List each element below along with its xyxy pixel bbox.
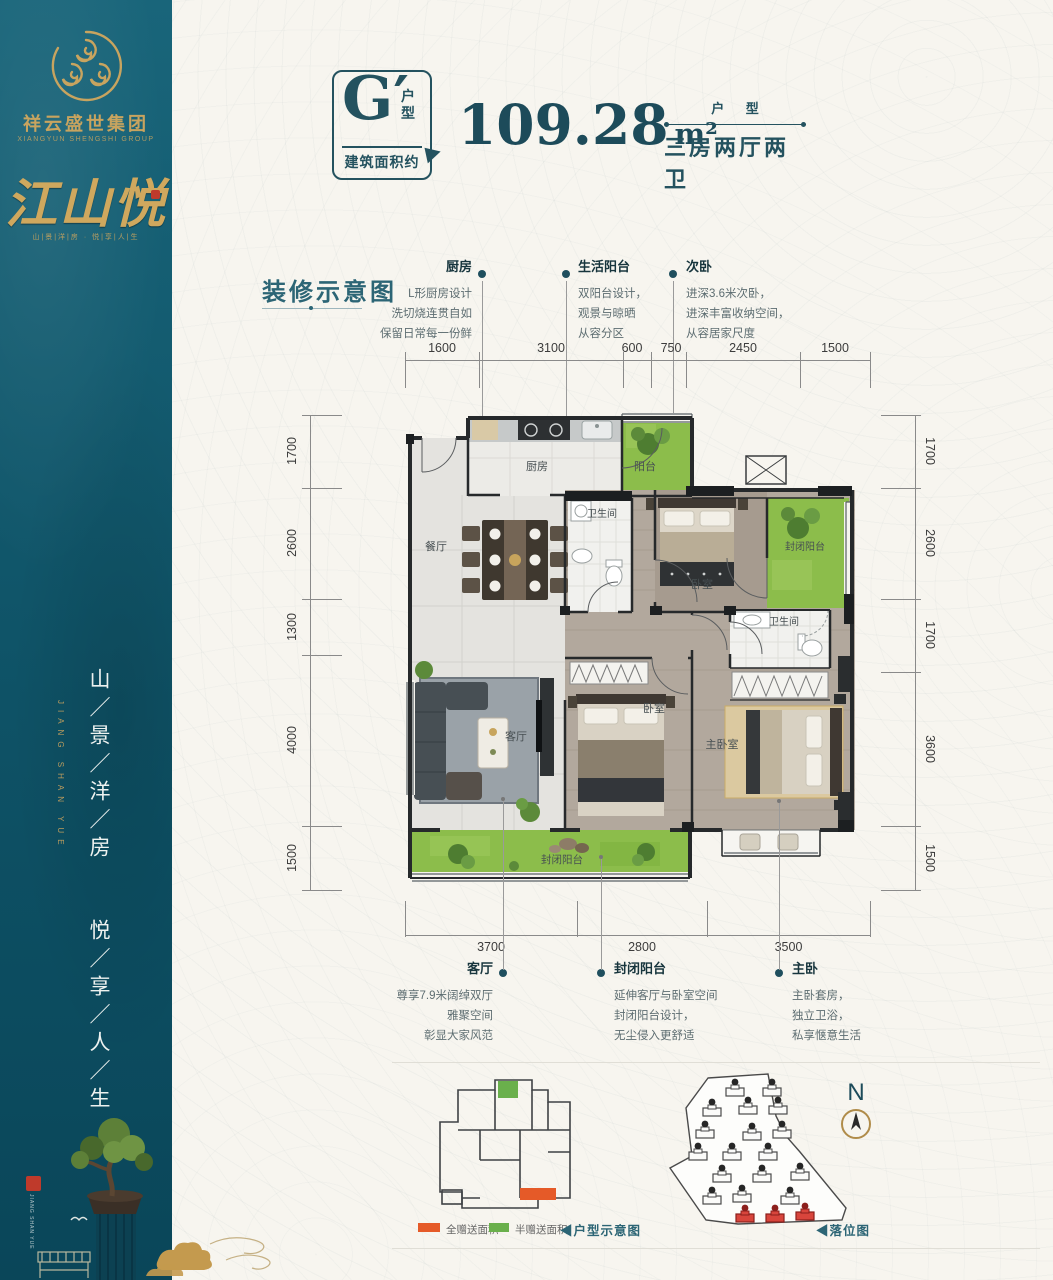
callout-dot xyxy=(669,270,677,278)
dim-left-5: 1500 xyxy=(285,828,299,888)
group-spiral-logo-icon xyxy=(46,26,126,106)
callout-dot xyxy=(562,270,570,278)
dim-tick xyxy=(870,352,871,388)
callout-enclosed-balcony-line1: 延伸客厅与卧室空间 xyxy=(614,986,774,1006)
site-plan-diagram: N xyxy=(660,1068,930,1243)
living-room-furniture xyxy=(414,661,554,822)
leader-line xyxy=(601,858,602,970)
dim-tick xyxy=(881,488,921,489)
dim-right-4: 3600 xyxy=(923,719,937,779)
callout-kitchen-line2: 洗切烧连贯自如 xyxy=(332,304,472,324)
label-master: 主卧室 xyxy=(706,737,739,751)
label-bath2: 卫生间 xyxy=(769,615,799,628)
footer-rule-bottom xyxy=(392,1248,1040,1249)
slogan-line-1: 山／景／洋／房 xyxy=(84,668,114,864)
dim-right-1: 1700 xyxy=(923,421,937,481)
layout-type-rule xyxy=(664,121,806,128)
callout-kitchen-title: 厨房 xyxy=(332,256,472,279)
unit-location-diagram xyxy=(420,1072,620,1217)
leader-enddot xyxy=(777,799,781,803)
red-seal-icon xyxy=(26,1176,41,1191)
dim-tick xyxy=(405,901,406,937)
leader-line xyxy=(503,800,504,970)
vertical-slogan: 山／景／洋／房 悦／享／人／生 xyxy=(84,668,114,1115)
dim-line-right xyxy=(915,415,916,890)
sidebar: 祥云盛世集团 XIANGYUN SHENGSHI GROUP 江山悦 山|景|洋… xyxy=(0,0,172,1280)
dim-tick xyxy=(302,826,342,827)
dim-line-left xyxy=(310,415,311,890)
dim-tick xyxy=(302,655,342,656)
layout-type-group: 户 型 三房两厅两卫 xyxy=(664,98,806,194)
legend-swatch-half xyxy=(489,1223,509,1232)
label-bath1: 卫生间 xyxy=(587,507,617,520)
dim-left-1: 1700 xyxy=(285,421,299,481)
dim-tick xyxy=(577,901,578,937)
callout-master-line1: 主卧套房， xyxy=(792,986,922,1006)
callout-master-title: 主卧 xyxy=(792,958,922,981)
dim-tick xyxy=(870,901,871,937)
group-name: 祥云盛世集团 xyxy=(0,110,172,136)
half-gift-area xyxy=(498,1081,518,1098)
callout-dot xyxy=(478,270,486,278)
vertical-slogan-en: JIANG SHAN YUE xyxy=(56,700,65,851)
dim-tick xyxy=(623,352,624,388)
callout-master-line2: 独立卫浴， xyxy=(792,1006,922,1026)
legend-swatch-full xyxy=(418,1223,440,1232)
dim-left-4: 4000 xyxy=(285,710,299,770)
dim-tick xyxy=(707,901,708,937)
unit-tag-char-2: 型 xyxy=(400,105,416,122)
bay-window xyxy=(722,830,820,856)
dim-tick xyxy=(686,352,687,388)
north-letter: N xyxy=(847,1079,864,1106)
dim-tick xyxy=(881,672,921,673)
callout-dot xyxy=(499,969,507,977)
dim-bottom-2: 2800 xyxy=(577,940,707,954)
leader-line xyxy=(779,802,780,970)
dim-tick xyxy=(302,415,342,416)
layout-type-label: 户 型 xyxy=(664,98,806,117)
poster-canvas: 祥云盛世集团 XIANGYUN SHENGSHI GROUP 江山悦 山|景|洋… xyxy=(0,0,1053,1280)
compass-icon xyxy=(842,1110,870,1138)
dim-top-4: 750 xyxy=(651,341,691,355)
callout-second-bedroom-line2: 进深丰富收纳空间， xyxy=(686,304,846,324)
unit-tag-char-1: 户 xyxy=(400,88,416,105)
kitchen-counter xyxy=(468,418,622,442)
layout-type-value: 三房两厅两卫 xyxy=(664,130,806,194)
callout-enclosed-balcony-line2: 封闭阳台设计， xyxy=(614,1006,774,1026)
dim-tick xyxy=(302,488,342,489)
unit-box-divider xyxy=(342,146,422,148)
dining-table xyxy=(462,520,568,600)
callout-master: 主卧 主卧套房， 独立卫浴， 私享惬意生活 xyxy=(792,958,922,1046)
label-bedroom2: 卧室 xyxy=(643,701,665,715)
callout-living-line1: 尊享7.9米阔绰双厅 xyxy=(353,986,493,1006)
callout-enclosed-balcony-line3: 无尘侵入更舒适 xyxy=(614,1026,774,1046)
callout-dot xyxy=(597,969,605,977)
callout-living-title: 客厅 xyxy=(353,958,493,981)
callout-second-bedroom-title: 次卧 xyxy=(686,256,846,279)
bedroom1-bed xyxy=(646,498,748,586)
dim-tick xyxy=(302,890,342,891)
full-gift-area xyxy=(520,1188,556,1200)
dim-tick xyxy=(881,599,921,600)
area-label: 建筑面积约 xyxy=(334,152,430,172)
callout-living-line2: 雅聚空间 xyxy=(353,1006,493,1026)
bird-icon xyxy=(70,1214,88,1224)
dim-left-2: 2600 xyxy=(285,513,299,573)
callout-dot xyxy=(775,969,783,977)
leader-enddot xyxy=(501,797,505,801)
footer-rule-top xyxy=(392,1062,1040,1063)
callout-enclosed-balcony: 封闭阳台 延伸客厅与卧室空间 封闭阳台设计， 无尘侵入更舒适 xyxy=(614,958,774,1046)
callout-second-bedroom-line1: 进深3.6米次卧， xyxy=(686,284,846,304)
label-dining: 餐厅 xyxy=(425,539,447,553)
unit-diagram-label: ◀户型示意图 xyxy=(560,1220,641,1239)
unit-code-tag: 户 型 xyxy=(400,88,416,122)
site-diagram-label: ◀落位图 xyxy=(760,1220,870,1239)
dim-line-bottom xyxy=(405,935,870,936)
label-living: 客厅 xyxy=(505,729,527,743)
callout-kitchen: 厨房 L形厨房设计 洗切烧连贯自如 保留日常每一份鲜 xyxy=(332,256,472,344)
callout-living-line3: 彰显大家风范 xyxy=(353,1026,493,1046)
dim-top-2: 3100 xyxy=(479,341,623,355)
dim-right-2: 2600 xyxy=(923,513,937,573)
dim-tick xyxy=(881,826,921,827)
dim-right-3: 1700 xyxy=(923,605,937,665)
slogan-line-2: 悦／享／人／生 xyxy=(84,919,114,1115)
label-balcony: 阳台 xyxy=(634,459,656,473)
rule-dot-right xyxy=(801,122,806,127)
callout-kitchen-line1: L形厨房设计 xyxy=(332,284,472,304)
dim-left-3: 1300 xyxy=(285,597,299,657)
leader-enddot xyxy=(599,855,603,859)
label-kitchen: 厨房 xyxy=(526,460,548,473)
label-enclosed-right: 封闭阳台 xyxy=(785,540,825,553)
floor-plan: 厨房 阳台 卫生间 卧室 封闭阳台 餐厅 卫生间 客厅 卧室 主卧室 封闭阳台 xyxy=(400,410,870,890)
brand-calligraphy: 江山悦 xyxy=(0,162,172,237)
dim-tick xyxy=(405,352,406,388)
dim-top-3: 600 xyxy=(615,341,649,355)
gold-clouds-icon xyxy=(140,1226,300,1280)
dim-top-1: 1600 xyxy=(405,341,479,355)
dim-bottom-3: 3500 xyxy=(707,940,870,954)
dim-top-5: 2450 xyxy=(686,341,800,355)
red-seal-caption: JIANG SHAN YUE xyxy=(28,1194,34,1250)
callout-living: 客厅 尊享7.9米阔绰双厅 雅聚空间 彰显大家风范 xyxy=(353,958,493,1046)
dim-tick xyxy=(479,352,480,388)
callout-second-bedroom: 次卧 进深3.6米次卧， 进深丰富收纳空间， 从容居家尺度 xyxy=(686,256,846,344)
unit-code-box: G′ 户 型 建筑面积约 xyxy=(332,70,432,180)
callout-master-line3: 私享惬意生活 xyxy=(792,1026,922,1046)
brand-seal-icon xyxy=(151,190,160,199)
dim-tick xyxy=(881,415,921,416)
dim-tick xyxy=(651,352,652,388)
brand-tagline: 山|景|洋|房 · 悦|享|人|生 xyxy=(0,232,172,242)
dim-tick xyxy=(800,352,801,388)
unit-box-tail xyxy=(425,145,443,164)
dim-tick xyxy=(881,890,921,891)
label-enclosed-bottom: 封闭阳台 xyxy=(541,853,583,866)
callout-enclosed-balcony-title: 封闭阳台 xyxy=(614,958,774,981)
group-name-en: XIANGYUN SHENGSHI GROUP xyxy=(0,136,172,143)
dim-bottom-1: 3700 xyxy=(405,940,577,954)
dim-tick xyxy=(302,599,342,600)
section-title-dot xyxy=(309,306,313,310)
flue-box xyxy=(746,456,786,484)
bench-lineart-icon xyxy=(30,1248,116,1280)
dim-right-5: 1500 xyxy=(923,828,937,888)
label-bedroom1: 卧室 xyxy=(691,577,713,591)
unit-code: G′ xyxy=(342,64,409,134)
dim-top-6: 1500 xyxy=(800,341,870,355)
area-number: 109.28 xyxy=(458,92,669,157)
